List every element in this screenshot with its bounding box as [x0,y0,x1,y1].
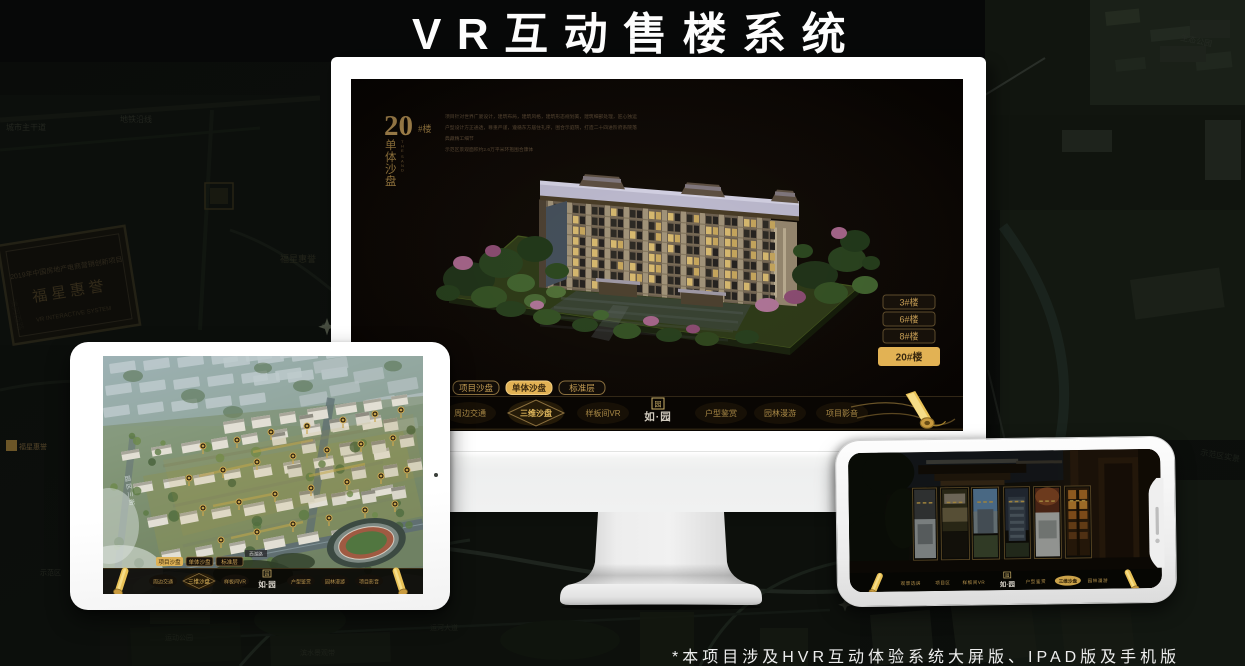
svg-text:项目影音: 项目影音 [826,408,858,418]
svg-text:城市主干道: 城市主干道 [6,122,46,132]
svg-text:户型鉴赏: 户型鉴赏 [705,408,737,418]
svg-text:地铁沿线: 地铁沿线 [120,114,152,124]
svg-text:周边交通: 周边交通 [454,408,486,418]
svg-text:20#楼: 20#楼 [896,351,923,364]
svg-text:单体沙盘: 单体沙盘 [512,383,547,393]
svg-text:标准层: 标准层 [569,383,595,393]
svg-text:3#楼: 3#楼 [899,297,918,308]
svg-text:三维沙盘: 三维沙盘 [520,408,552,418]
svg-text:西湖路: 西湖路 [249,551,263,558]
svg-text:6#楼: 6#楼 [899,314,918,325]
svg-text:项目沙盘: 项目沙盘 [459,383,494,393]
svg-text:项目沙盘: 项目沙盘 [158,558,181,566]
svg-text:福星惠誉: 福星惠誉 [19,442,47,451]
svg-text:户型鉴赏: 户型鉴赏 [291,579,311,586]
svg-text:标准层: 标准层 [221,558,238,566]
svg-text:周边交通: 周边交通 [153,579,173,586]
svg-text:运河大道: 运河大道 [430,623,458,632]
svg-text:如·园: 如·园 [644,410,672,423]
svg-text:园: 园 [264,572,269,578]
svg-text:滨水景观带: 滨水景观带 [300,648,335,657]
svg-text:如·园: 如·园 [1000,579,1016,588]
svg-text:示范区: 示范区 [40,568,61,577]
svg-text:园林漫游: 园林漫游 [764,408,796,418]
svg-text:样板间VR: 样板间VR [224,579,246,586]
svg-text:如·园: 如·园 [258,579,276,589]
svg-text:项目影音: 项目影音 [359,579,379,586]
svg-text:8#楼: 8#楼 [899,331,918,342]
svg-text:样板间VR: 样板间VR [585,408,620,418]
svg-text:福星惠誉: 福星惠誉 [280,253,316,264]
svg-text:园林漫游: 园林漫游 [325,579,345,586]
svg-text:园: 园 [655,401,662,409]
svg-text:三维沙盘: 三维沙盘 [188,578,211,586]
svg-text:单体沙盘: 单体沙盘 [188,558,211,566]
svg-text:运动公园: 运动公园 [165,633,193,642]
